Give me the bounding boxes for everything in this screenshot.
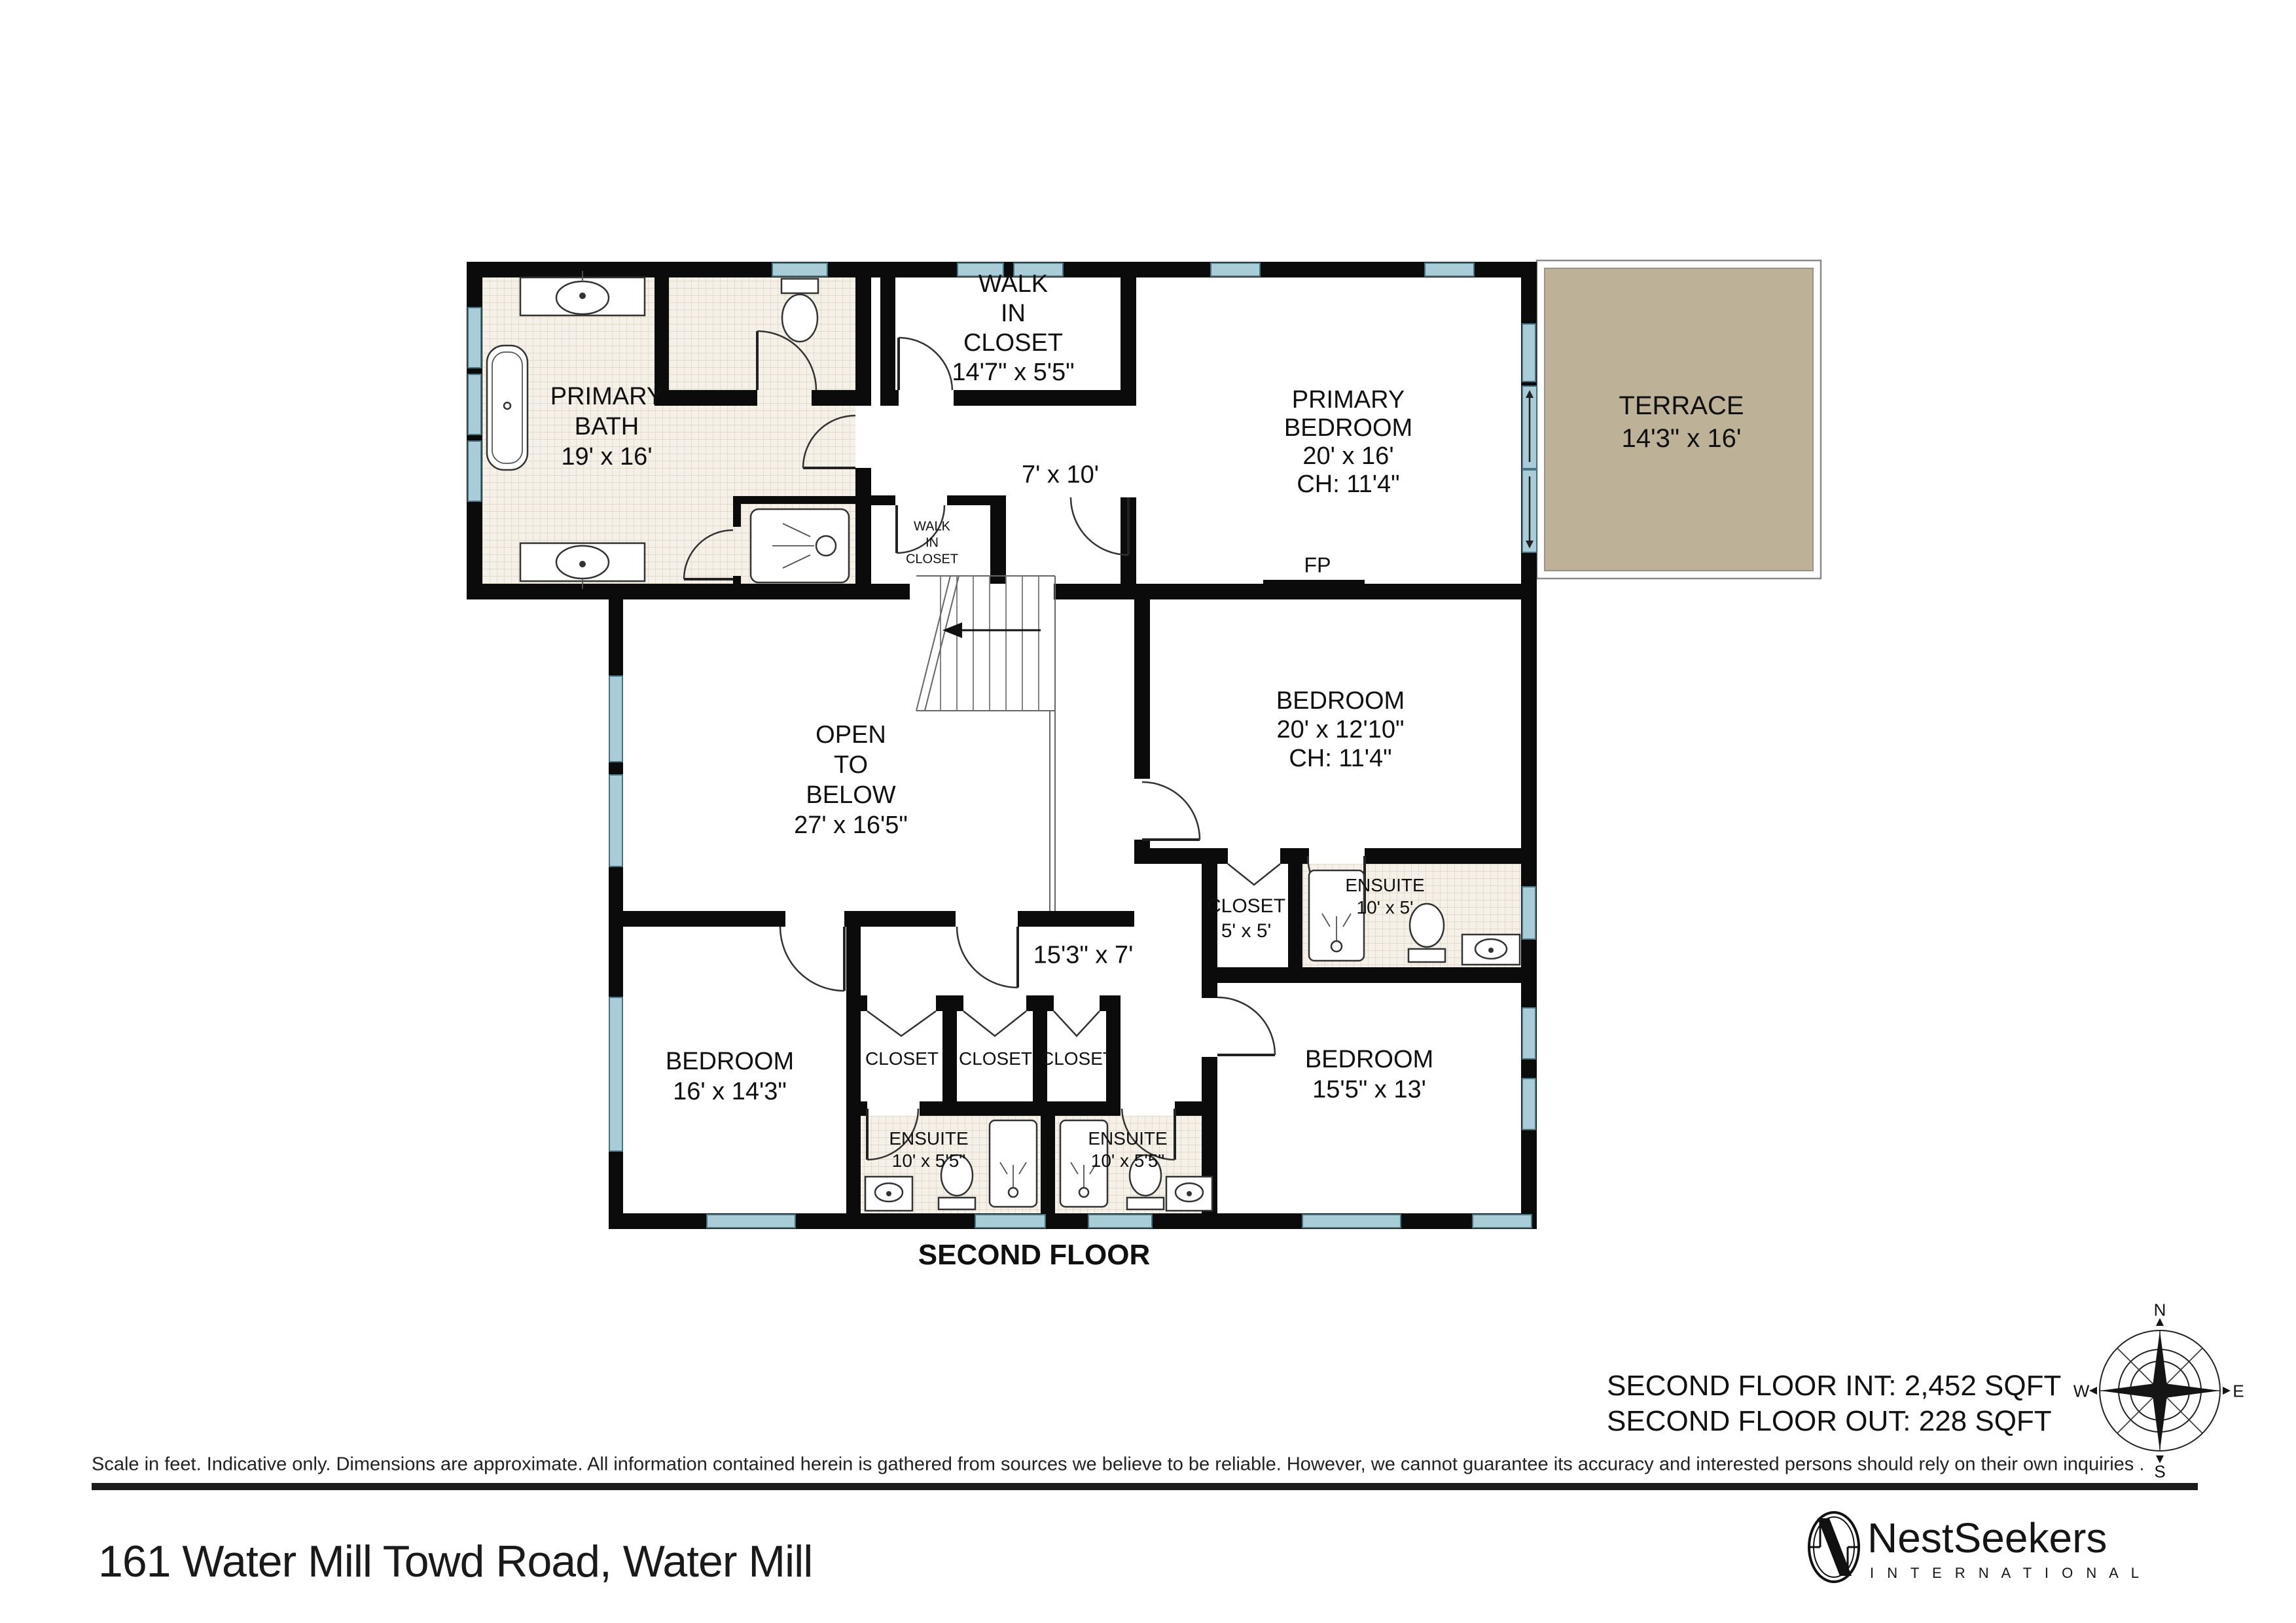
room-label-closet-5x5: CLOSET5' x 5'	[1207, 894, 1285, 944]
compass-east-label: E	[2233, 1382, 2244, 1402]
divider-rule	[92, 1483, 2198, 1490]
room-label-bedroom-3: BEDROOM16' x 14'3"	[666, 1046, 794, 1107]
room-label-primary-bedroom: PRIMARYBEDROOM20' x 16'CH: 11'4"	[1284, 386, 1412, 499]
bathtub-icon	[487, 346, 528, 470]
shower-icon	[751, 509, 849, 582]
compass-rose-icon	[2089, 1318, 2231, 1463]
fireplace-icon	[1263, 580, 1365, 599]
address: 161 Water Mill Towd Road, Water Mill	[98, 1536, 812, 1587]
room-label-closet-b: CLOSET	[959, 1048, 1032, 1069]
stairs-icon	[916, 576, 1055, 911]
room-label-lower-hall: 15'3" x 7'	[1033, 942, 1134, 970]
room-label-bedroom-2: BEDROOM20' x 12'10"CH: 11'4"	[1276, 687, 1405, 773]
sink-icon	[1166, 1177, 1212, 1211]
room-label-upper-hall: 7' x 10'	[1022, 461, 1099, 490]
room-label-primary-bath: PRIMARYBATH19' x 16'	[550, 382, 663, 472]
compass-west-label: W	[2073, 1382, 2090, 1402]
room-label-fireplace: FP	[1304, 554, 1331, 578]
vanity-sink-icon	[520, 271, 645, 315]
sink-icon	[1462, 935, 1520, 965]
compass-north-label: N	[2154, 1300, 2166, 1321]
room-label-terrace: TERRACE14'3" x 16'	[1619, 389, 1744, 455]
sliding-door-icon	[1522, 386, 1537, 552]
floor-title: SECOND FLOOR	[918, 1239, 1150, 1272]
room-label-small-wic: WALKINCLOSET	[906, 519, 958, 568]
disclaimer: Scale in feet. Indicative only. Dimensio…	[92, 1454, 2144, 1476]
stats-interior: SECOND FLOOR INT: 2,452 SQFT	[1607, 1370, 2061, 1402]
room-label-ensuite-bm: ENSUITE10' x 5'5"	[1088, 1128, 1167, 1172]
room-label-open-to-below: OPENTOBELOW27' x 16'5"	[794, 720, 908, 840]
toilet-icon	[781, 279, 818, 342]
room-label-walk-in-closet: WALKINCLOSET14'7" x 5'5"	[952, 270, 1074, 387]
shower-icon	[990, 1120, 1037, 1207]
room-label-ensuite-mid: ENSUITE10' x 5'	[1345, 874, 1424, 919]
room-label-ensuite-bl: ENSUITE10' x 5'5"	[889, 1128, 968, 1172]
compass-south-label: S	[2154, 1462, 2165, 1482]
nestseekers-logo-icon	[1809, 1512, 1859, 1582]
stats-exterior: SECOND FLOOR OUT: 228 SQFT	[1607, 1405, 2052, 1438]
brand-name: NestSeekers	[1867, 1514, 2107, 1562]
room-label-closet-c: CLOSET	[1041, 1048, 1114, 1069]
floor-plan-page: PRIMARYBATH19' x 16' WALKINCLOSET14'7" x…	[0, 0, 2296, 1623]
room-label-bedroom-4: BEDROOM15'5" x 13'	[1305, 1044, 1433, 1105]
sink-icon	[865, 1177, 912, 1211]
brand-tagline: I N T E R N A T I O N A L	[1870, 1565, 2144, 1582]
room-label-closet-a: CLOSET	[865, 1048, 939, 1069]
